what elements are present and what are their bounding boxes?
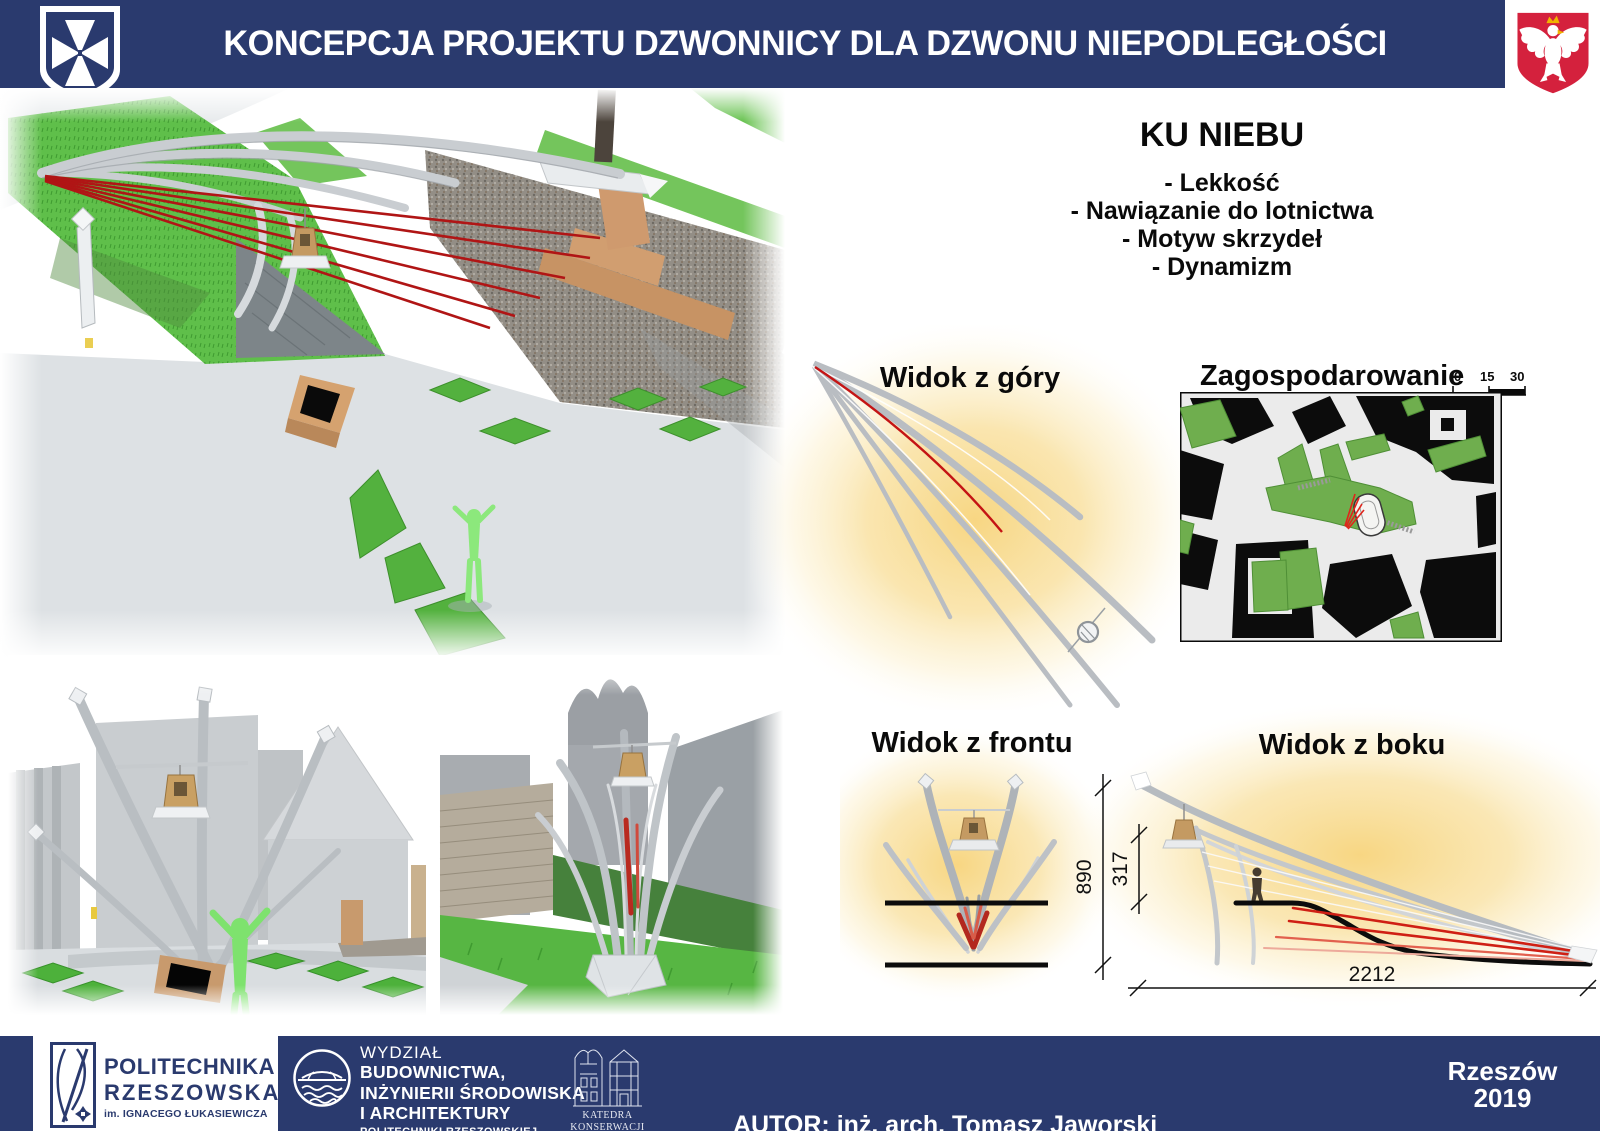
concept-item: - Lekkość [1022,169,1422,197]
label-side-view: Widok z boku [1212,729,1492,762]
city: Rzeszów [1430,1058,1575,1085]
concept-title: KU NIEBU [1022,116,1422,155]
svg-text:317: 317 [1109,851,1132,886]
poland-emblem-icon [1510,5,1596,103]
year: 2019 [1430,1085,1575,1112]
label-site-plan: Zagospodarowanie [1200,360,1464,393]
svg-text:2212: 2212 [1349,963,1396,986]
department-line1: KATEDRA KONSERWACJI [545,1110,670,1131]
university-patron: im. IGNACEGO ŁUKASIEWICZA [104,1109,280,1120]
university-name-line1: POLITECHNIKA [104,1056,280,1078]
page-title: KONCEPCJA PROJEKTU DZWONNICY DLA DZWONU … [173,0,1437,88]
department-logo-icon [572,1044,644,1108]
concept-item: - Motyw skrzydeł [1022,225,1422,253]
university-name-line2: RZESZOWSKA [104,1082,280,1104]
concept-item: - Nawiązanie do lotnictwa [1022,197,1422,225]
faculty-line3: INŻYNIERII ŚRODOWISKA [360,1085,585,1103]
credits-block: AUTOR: inż. arch. Tomasz Jaworski PROMOT… [733,1058,1341,1131]
label-top-view: Widok z góry [830,362,1110,395]
svg-text:15: 15 [1480,369,1494,384]
department-name: KATEDRA KONSERWACJI ZABYTKÓW [545,1110,670,1131]
poster-page: KONCEPCJA PROJEKTU DZWONNICY DLA DZWONU … [0,0,1600,1131]
svg-text:30: 30 [1510,369,1524,384]
render-ground-views [8,655,783,1015]
label-front-view: Widok z frontu [832,727,1112,760]
faculty-line1: WYDZIAŁ [360,1044,585,1061]
site-plan-map [1180,392,1502,642]
city-year-block: Rzeszów 2019 [1430,1058,1575,1112]
concept-item: - Dynamizm [1022,253,1422,281]
university-name: POLITECHNIKA RZESZOWSKA im. IGNACEGO ŁUK… [104,1056,280,1120]
svg-text:890: 890 [1073,859,1096,894]
faculty-logo-icon [292,1048,352,1108]
author-line: AUTOR: inż. arch. Tomasz Jaworski [733,1112,1341,1131]
politechnika-logo-icon [50,1042,96,1128]
concept-block: KU NIEBU - Lekkość - Nawiązanie do lotni… [1022,116,1422,281]
faculty-line2: BUDOWNICTWA, [360,1064,585,1082]
svg-text:0: 0 [1454,369,1461,384]
render-aerial-view [0,88,785,660]
